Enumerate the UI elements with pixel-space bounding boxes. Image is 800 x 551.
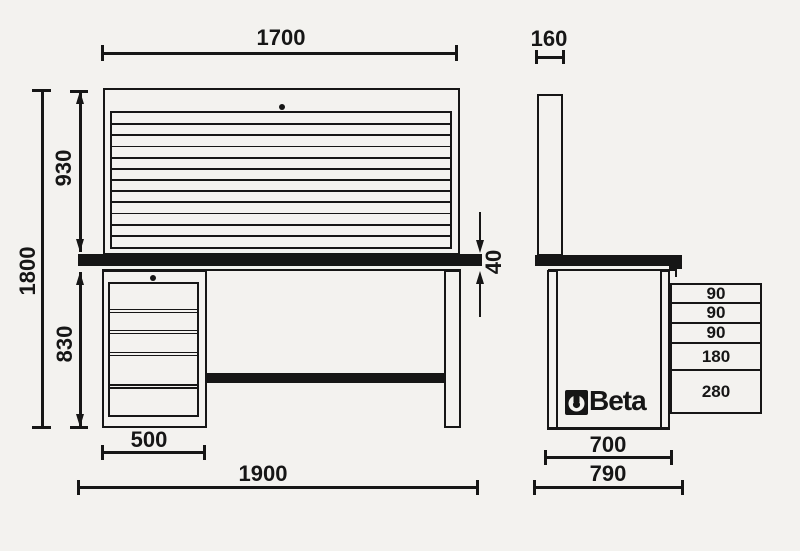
worktop-side (535, 255, 682, 266)
dim-label-under-height: 830 (54, 326, 76, 363)
panel-slat-line (112, 168, 450, 170)
dim-tick (681, 480, 684, 495)
dim-line-panel-depth (537, 56, 563, 59)
beta-wrench-icon (565, 390, 588, 415)
drawer-separator (110, 333, 197, 335)
drawer-front-box (108, 282, 199, 417)
side-front-leg (547, 270, 558, 429)
arrowhead-down (476, 240, 484, 253)
dim-tick (203, 445, 206, 460)
dim-tick (670, 450, 673, 465)
drawer-height-row: 90 (672, 285, 760, 304)
panel-slat-line (112, 201, 450, 203)
panel-slat-line (112, 213, 450, 215)
drawer-separator (110, 352, 197, 354)
dim-label-panel-width: 1700 (257, 27, 306, 49)
arrowhead-up (76, 91, 84, 104)
dim-label-total-depth: 790 (590, 463, 627, 485)
drawer-separator (110, 387, 197, 389)
drawer-separator (110, 330, 197, 332)
drawer-height-row: 90 (672, 324, 760, 344)
dim-line-top-thickness-upper (479, 212, 482, 240)
dim-line-total-width (78, 486, 478, 489)
dim-line-total-height (41, 90, 44, 427)
dim-tick (32, 89, 51, 92)
dim-label-panel-depth: 160 (531, 28, 568, 50)
drawer-separator (110, 309, 197, 311)
drawer-height-row: 180 (672, 344, 760, 371)
dim-tick (544, 450, 547, 465)
panel-slat-line (112, 179, 450, 181)
panel-screw-dot (279, 104, 285, 110)
panel-slat-line (112, 134, 450, 136)
dim-line-bench-depth (546, 456, 672, 459)
tool-panel-slatted (110, 111, 452, 249)
front-right-leg (444, 270, 462, 428)
dim-tick (562, 50, 565, 64)
drawer-separator (110, 312, 197, 314)
side-bottom-edge (547, 427, 670, 430)
dim-label-cabinet-width: 500 (131, 429, 168, 451)
dim-tick (533, 480, 536, 495)
dim-line-panel-height (79, 91, 82, 252)
dim-tick (77, 480, 80, 495)
panel-slat-line (112, 157, 450, 159)
under-top-rail-side (548, 269, 677, 272)
beta-logo-text: Beta (589, 387, 646, 415)
dim-tick (535, 50, 538, 64)
cabinet-lock-dot (150, 275, 156, 281)
dim-label-top-thickness: 40 (483, 250, 505, 274)
dim-tick (101, 445, 104, 460)
drawer-separator (110, 355, 197, 357)
dim-line-cabinet-width (102, 451, 205, 454)
dim-label-panel-height: 930 (53, 150, 75, 187)
dim-tick (70, 426, 88, 429)
side-rear-leg (660, 270, 671, 429)
arrowhead-up (476, 271, 484, 284)
workbench-dimension-drawing: 1700 1800 930 (0, 0, 800, 551)
rail-end-drop (675, 269, 678, 277)
dim-line-total-depth (535, 486, 683, 489)
panel-slat-line (112, 224, 450, 226)
arrowhead-down (76, 239, 84, 252)
dim-line-panel-width (102, 52, 457, 55)
dim-tick (455, 45, 458, 61)
dim-tick (32, 426, 51, 429)
drawer-height-row: 280 (672, 371, 760, 412)
wrench-glyph (565, 390, 588, 415)
lower-stretcher (207, 373, 444, 383)
panel-slat-line (112, 190, 450, 192)
tool-panel-side (537, 94, 563, 256)
dim-line-top-thickness-lower (479, 284, 482, 317)
arrowhead-up (76, 272, 84, 285)
dim-tick (476, 480, 479, 495)
dim-label-total-height: 1800 (17, 247, 39, 296)
dim-label-bench-depth: 700 (590, 434, 627, 456)
drawer-separator (110, 384, 197, 386)
drawer-height-table: 90 90 90 180 280 (670, 283, 762, 414)
panel-slat-line (112, 235, 450, 237)
dim-label-total-width: 1900 (239, 463, 288, 485)
dim-line-under-height (79, 272, 82, 427)
panel-slat-line (112, 123, 450, 125)
drawer-height-row: 90 (672, 304, 760, 324)
dim-tick (101, 45, 104, 61)
panel-slat-line (112, 146, 450, 148)
worktop-front (78, 254, 482, 266)
